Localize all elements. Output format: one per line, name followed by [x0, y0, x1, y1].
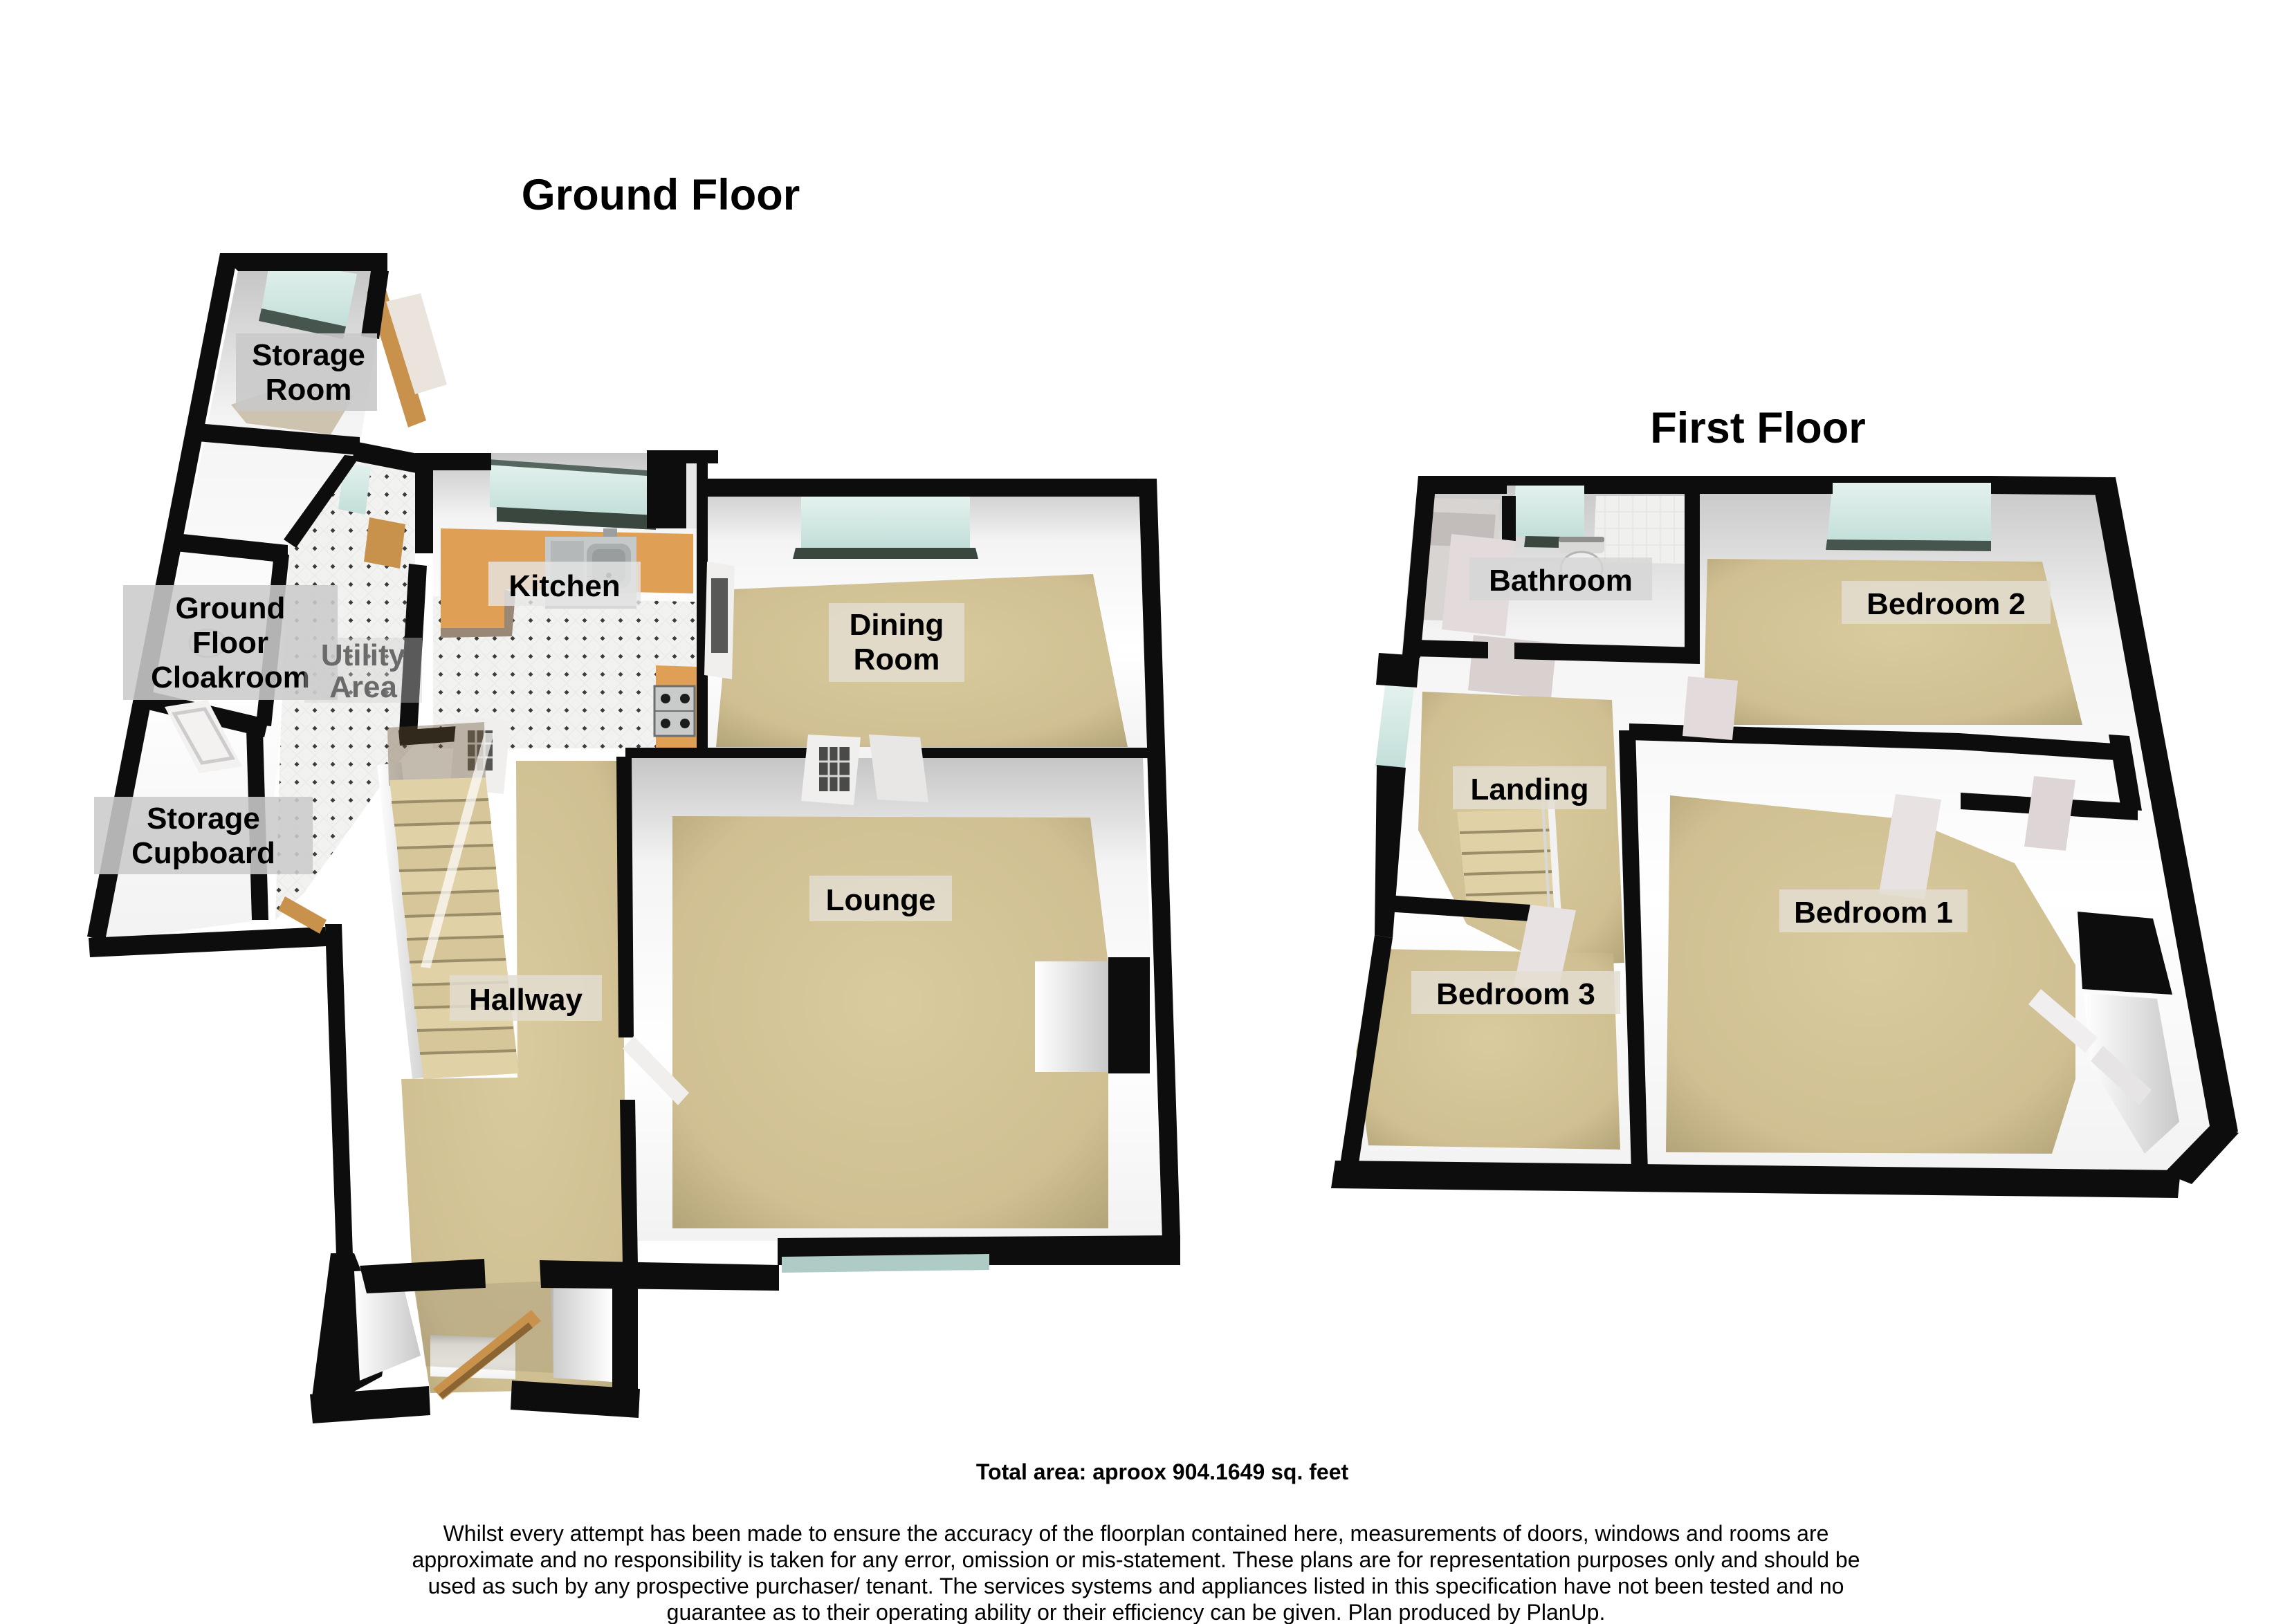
svg-text:Storage: Storage	[252, 338, 365, 372]
svg-text:Ground: Ground	[176, 591, 286, 625]
svg-text:Dining: Dining	[850, 608, 944, 642]
svg-text:Bathroom: Bathroom	[1489, 564, 1633, 598]
svg-text:Bedroom 3: Bedroom 3	[1436, 977, 1595, 1011]
svg-text:Room: Room	[854, 643, 940, 676]
svg-text:Cupboard: Cupboard	[131, 836, 275, 870]
svg-text:Bedroom 1: Bedroom 1	[1794, 896, 1953, 930]
svg-text:Ground Floor: Ground Floor	[522, 171, 800, 219]
svg-text:Room: Room	[266, 373, 352, 407]
svg-text:Lounge: Lounge	[826, 883, 936, 917]
svg-text:Utility: Utility	[321, 638, 406, 672]
svg-text:approximate and no responsibil: approximate and no responsibility is tak…	[412, 1547, 1860, 1572]
svg-text:Storage: Storage	[147, 802, 260, 836]
svg-text:Landing: Landing	[1470, 773, 1588, 806]
svg-text:Area: Area	[329, 670, 397, 704]
svg-text:guarantee as to their operatin: guarantee as to their operating ability …	[667, 1600, 1606, 1624]
svg-text:Bedroom 2: Bedroom 2	[1867, 587, 2026, 621]
svg-text:First Floor: First Floor	[1650, 404, 1866, 452]
svg-text:Floor: Floor	[192, 626, 268, 660]
svg-text:used as such by any prospectiv: used as such by any prospective purchase…	[428, 1574, 1844, 1598]
svg-text:Whilst every attempt has been: Whilst every attempt has been made to en…	[443, 1521, 1829, 1546]
svg-text:Kitchen: Kitchen	[508, 569, 620, 603]
svg-text:Total area: aproox 904.1649 sq: Total area: aproox 904.1649 sq. feet	[976, 1459, 1349, 1484]
svg-text:Hallway: Hallway	[469, 983, 583, 1017]
svg-text:Cloakroom: Cloakroom	[151, 661, 310, 694]
